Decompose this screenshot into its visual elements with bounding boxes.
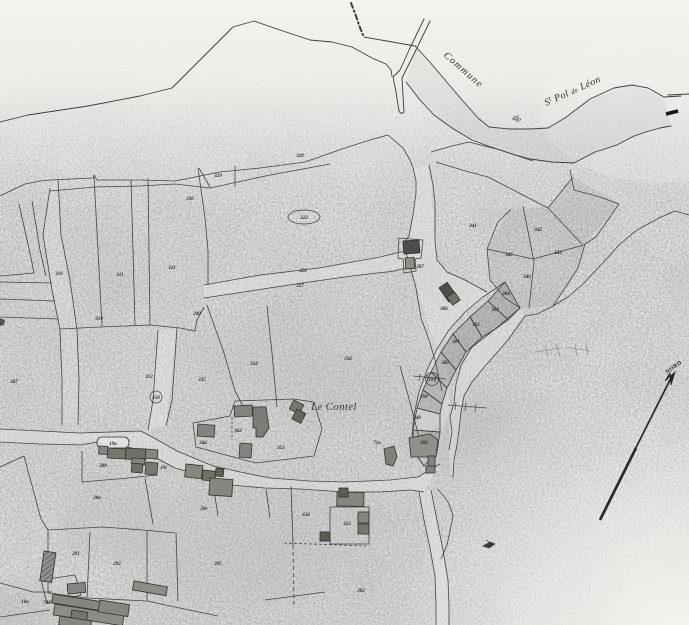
svg-text:310: 310 (54, 272, 63, 277)
svg-text:348: 348 (412, 416, 421, 421)
svg-text:322: 322 (299, 216, 308, 221)
svg-text:342: 342 (533, 228, 542, 233)
svg-text:321: 321 (167, 266, 176, 271)
svg-text:362: 362 (233, 429, 242, 434)
svg-text:300: 300 (440, 361, 449, 366)
svg-text:347: 347 (9, 380, 18, 385)
svg-text:634: 634 (302, 513, 310, 518)
svg-text:745: 745 (43, 601, 51, 606)
svg-text:304: 304 (501, 292, 510, 297)
svg-text:344: 344 (198, 441, 207, 446)
svg-text:332: 332 (249, 362, 258, 367)
svg-text:353: 353 (276, 446, 285, 451)
svg-text:71a: 71a (373, 441, 381, 446)
svg-text:334: 334 (343, 357, 352, 362)
svg-text:327: 327 (295, 284, 304, 289)
svg-text:299: 299 (427, 378, 436, 383)
svg-text:Le Contel: Le Contel (310, 401, 357, 413)
svg-text:329: 329 (213, 174, 222, 179)
svg-text:343: 343 (553, 251, 562, 256)
svg-text:349: 349 (192, 312, 201, 317)
svg-text:319: 319 (94, 317, 103, 322)
svg-text:330: 330 (185, 197, 194, 202)
svg-text:288: 288 (98, 464, 107, 469)
svg-text:298: 298 (419, 395, 428, 400)
svg-text:10a: 10a (21, 600, 29, 605)
svg-text:346: 346 (522, 275, 531, 280)
svg-text:20a: 20a (92, 496, 101, 501)
svg-text:302: 302 (471, 323, 480, 328)
svg-text:360: 360 (419, 441, 428, 446)
svg-text:20e: 20e (199, 507, 208, 512)
svg-text:19a: 19a (109, 442, 117, 447)
svg-text:312: 312 (144, 375, 153, 380)
svg-text:382: 382 (356, 589, 365, 594)
svg-text:291: 291 (71, 552, 80, 557)
svg-text:19c: 19c (160, 466, 168, 471)
svg-text:307: 307 (415, 265, 424, 270)
svg-text:292: 292 (112, 562, 121, 567)
svg-text:303: 303 (490, 308, 499, 313)
svg-text:345: 345 (504, 253, 513, 258)
svg-text:310: 310 (151, 396, 160, 401)
svg-text:335: 335 (197, 378, 206, 383)
svg-text:323: 323 (342, 522, 351, 527)
svg-text:341: 341 (468, 224, 477, 229)
svg-text:306: 306 (439, 307, 448, 312)
svg-text:295: 295 (213, 562, 222, 567)
svg-text:311: 311 (115, 273, 123, 278)
svg-text:328: 328 (295, 154, 304, 159)
svg-text:301: 301 (451, 340, 460, 345)
svg-text:326: 326 (298, 269, 307, 274)
